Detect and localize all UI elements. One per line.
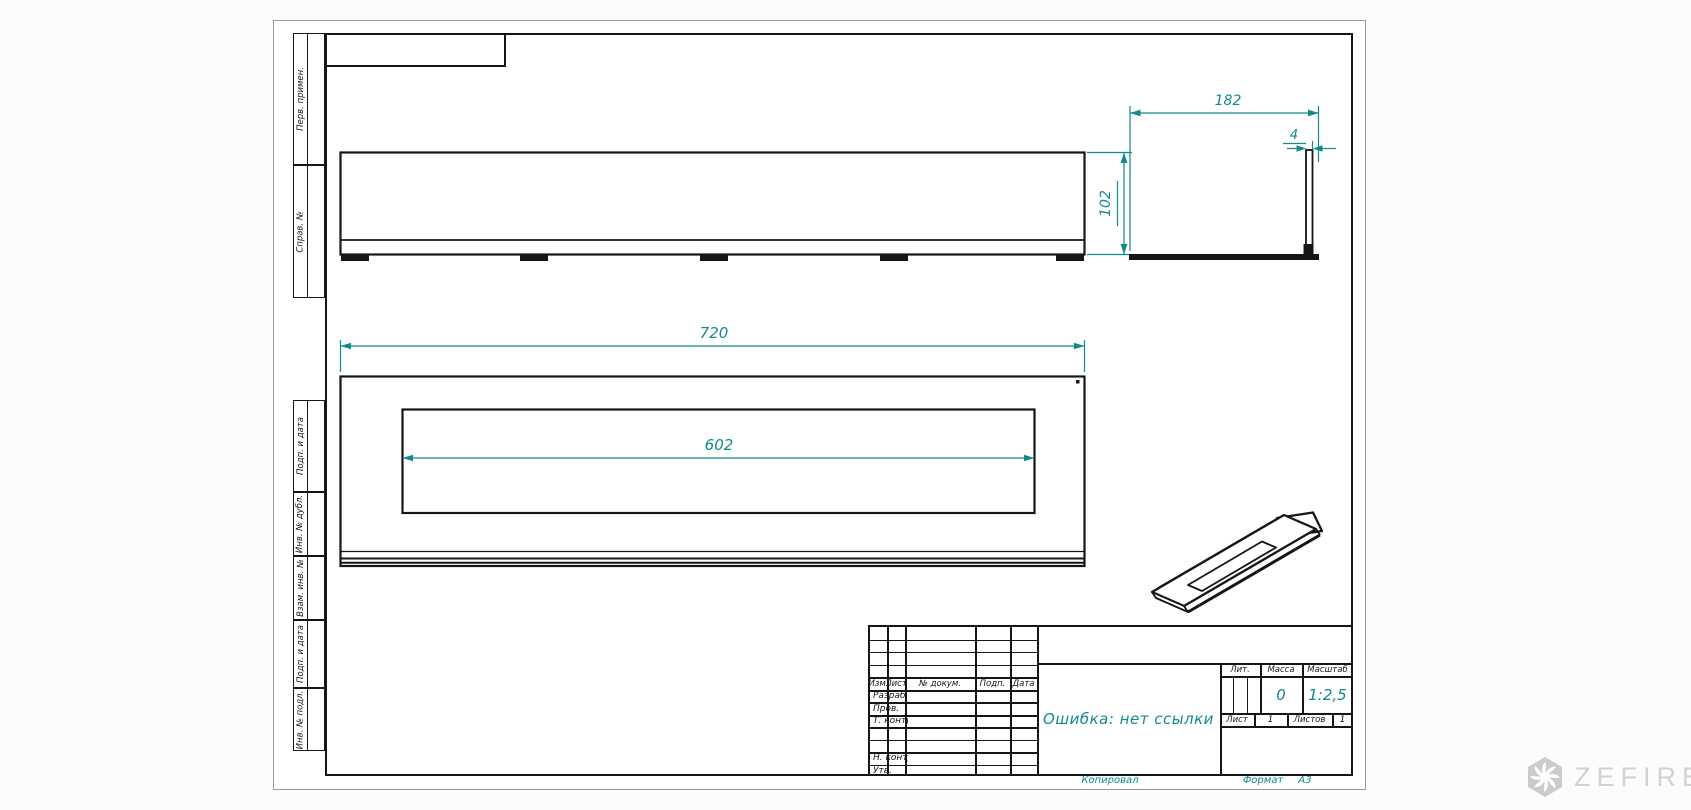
tb-mass-label: Масса	[1260, 663, 1302, 676]
plan-view	[341, 377, 1085, 567]
drawing-views: 102 182 4	[0, 0, 1691, 810]
dim-102-label: 102	[1098, 190, 1114, 217]
watermark: ZEFIRE	[1526, 756, 1691, 798]
tb-col-izm: Изм.	[870, 677, 887, 690]
tb-sheets-value: 1	[1332, 713, 1353, 726]
title-block: Изм. Лист № докум. Подп. Дата Разраб. Пр…	[868, 625, 1353, 776]
isometric-view	[1152, 513, 1322, 613]
tb-mass-value: 0	[1260, 676, 1302, 713]
zefire-logo-text: ZEFIRE	[1574, 762, 1691, 793]
dim-182-label: 182	[1215, 93, 1242, 109]
footer-copied: Копировал	[1040, 775, 1180, 786]
tb-col-podp: Подп.	[975, 677, 1010, 690]
tb-doc-name: Ошибка: нет ссылки	[1037, 663, 1220, 774]
tb-row-prov: Пров.	[870, 702, 908, 714]
tb-sheet-value: 1	[1254, 713, 1287, 726]
tb-row-empty-2	[870, 740, 908, 752]
dim-602-label: 602	[705, 436, 734, 454]
front-view	[341, 153, 1085, 262]
plan-view-dot	[1076, 380, 1080, 384]
dim-720	[341, 340, 1085, 372]
tb-col-docnum: № докум.	[905, 677, 975, 690]
tb-lit-label: Лит.	[1220, 663, 1260, 676]
tb-row-nkontr: Н. контр.	[870, 752, 908, 764]
dim-4-label: 4	[1290, 128, 1298, 143]
tb-sheets-label: Листов	[1287, 713, 1332, 726]
side-view	[1129, 150, 1319, 260]
zefire-logo-icon	[1526, 756, 1564, 798]
tb-scale-value: 1:2,5	[1302, 676, 1353, 713]
tb-sheet-label: Лист	[1220, 713, 1254, 726]
tb-row-tkontr: Т. контр.	[870, 715, 908, 727]
tb-row-empty-1	[870, 727, 908, 739]
tb-row-razrab: Разраб.	[870, 690, 908, 702]
dim-720-label: 720	[700, 324, 729, 342]
tb-col-list: Лист	[887, 677, 905, 690]
footer-format-label: Формат	[1232, 775, 1294, 786]
footer-format-value: А3	[1288, 775, 1322, 786]
tb-scale-label: Масштаб	[1302, 663, 1353, 676]
tb-col-data: Дата	[1010, 677, 1037, 690]
tb-row-utv: Утв.	[870, 765, 908, 777]
